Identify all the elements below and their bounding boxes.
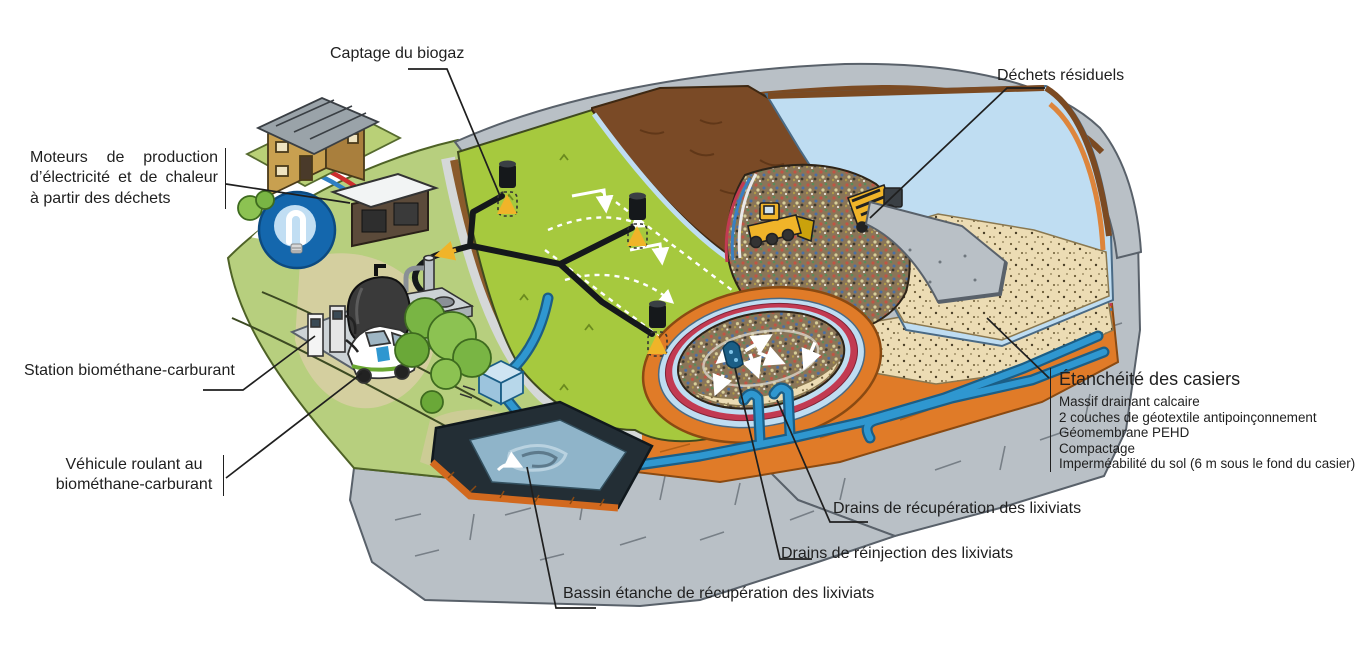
etancheite-item: Imperméabilité du sol (6 m sous le fond … bbox=[1059, 456, 1355, 472]
etancheite-item: 2 couches de géotextile antipoinçonnemen… bbox=[1059, 410, 1355, 426]
label-dechets-residuels: Déchets résiduels bbox=[997, 66, 1124, 86]
label-etancheite-block: Étanchéité des casiers Massif drainant c… bbox=[1050, 368, 1355, 472]
label-drains-recuperation: Drains de récupération des lixiviats bbox=[833, 499, 1081, 519]
etancheite-item: Géomembrane PEHD bbox=[1059, 425, 1355, 441]
etancheite-title: Étanchéité des casiers bbox=[1059, 368, 1355, 391]
landfill-illustration bbox=[0, 0, 1370, 653]
landfill-diagram: Captage du biogaz Déchets résiduels Mote… bbox=[0, 0, 1370, 653]
label-vehicule: Véhicule roulant au biométhane-carburant bbox=[52, 455, 224, 496]
etancheite-item: Compactage bbox=[1059, 441, 1355, 457]
label-captage-biogaz: Captage du biogaz bbox=[330, 44, 464, 64]
etancheite-item: Massif drainant calcaire bbox=[1059, 394, 1355, 410]
label-moteurs: Moteurs de production d’électricité et d… bbox=[30, 148, 226, 209]
label-bassin: Bassin étanche de récupération des lixiv… bbox=[563, 584, 874, 604]
label-station-biomethane: Station biométhane-carburant bbox=[24, 361, 235, 381]
label-drains-reinjection: Drains de réinjection des lixiviats bbox=[781, 544, 1013, 564]
